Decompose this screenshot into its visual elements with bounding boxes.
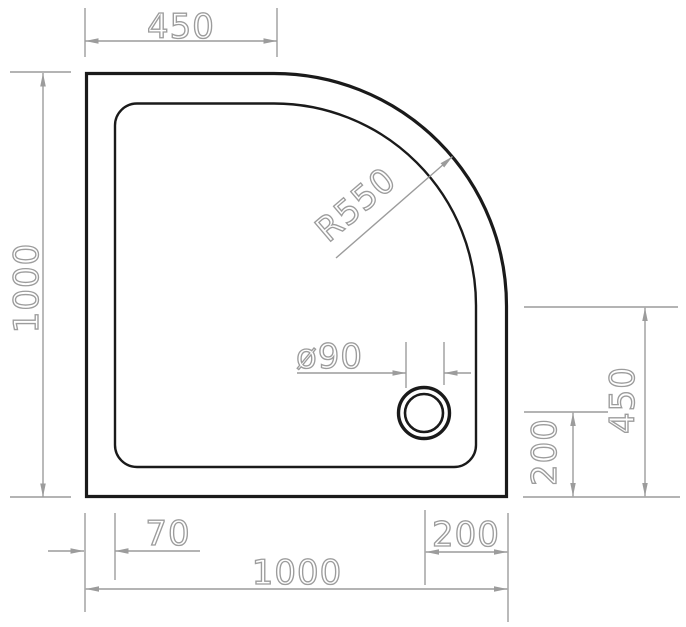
dim-label-right-200: 200: [525, 418, 565, 486]
dim-label-left-1000: 1000: [7, 243, 47, 334]
dim-label-bottom-70: 70: [145, 514, 190, 554]
dim-label-drain-diameter: ø90: [296, 337, 363, 377]
dim-label-top-450: 450: [147, 7, 215, 47]
dim-label-right-450: 450: [603, 366, 643, 434]
drawing-background: [0, 0, 686, 627]
dim-label-bottom-200: 200: [432, 515, 500, 555]
shower-tray-technical-drawing: 450 1000 R550 ø90 450 200 70 200 1000: [0, 0, 686, 627]
dim-label-bottom-1000: 1000: [252, 553, 343, 593]
